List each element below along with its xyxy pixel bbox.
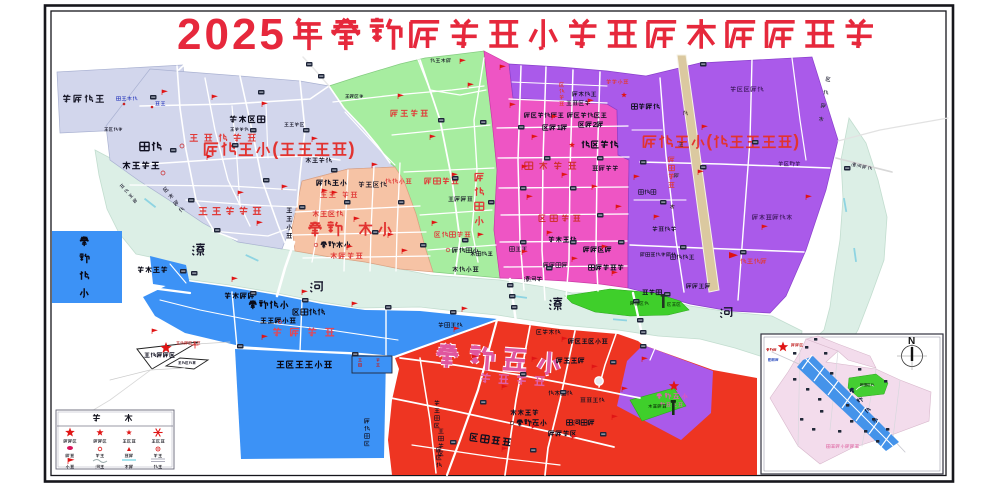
svg-text:2: 2 [593, 120, 597, 129]
svg-text:): ) [349, 139, 355, 159]
svg-text:): ) [793, 132, 799, 151]
svg-text:2025: 2025 [177, 10, 287, 59]
svg-text:N: N [908, 336, 915, 347]
svg-text:1: 1 [557, 123, 562, 132]
svg-text:(: ( [272, 139, 279, 159]
svg-text:(: ( [706, 132, 712, 151]
